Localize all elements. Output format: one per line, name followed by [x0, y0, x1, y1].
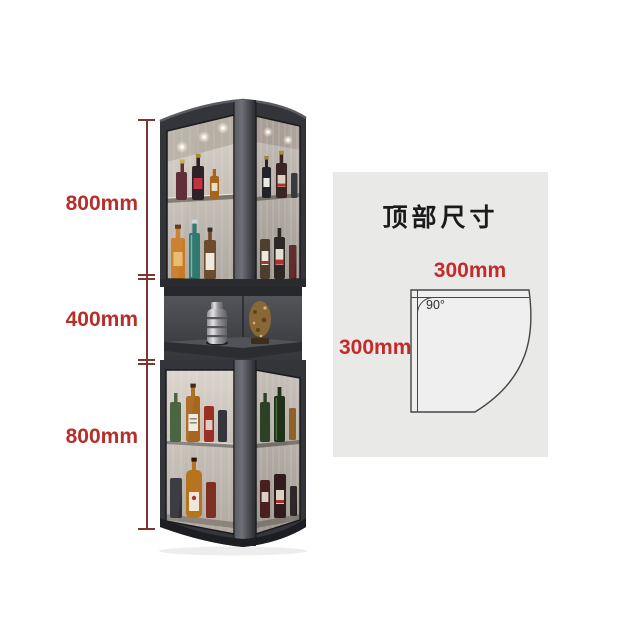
- top-view-width-label: 300mm: [410, 260, 530, 282]
- cabinet-top-section: [160, 100, 306, 287]
- top-view-quarter-circle-diagram: [333, 172, 548, 457]
- height-label-bottom-section: 800mm: [54, 426, 138, 448]
- top-view-panel: 顶部尺寸 300mm 300mm 90°: [333, 172, 548, 457]
- top-left-glass-door: [167, 114, 234, 281]
- corner-wine-cabinet-illustration: [148, 90, 320, 560]
- top-view-depth-label: 300mm: [339, 337, 405, 359]
- height-label-middle-section: 400mm: [54, 309, 138, 331]
- product-dimension-image: 800mm 400mm 800mm: [0, 0, 640, 640]
- top-right-glass-door: [256, 116, 300, 282]
- bottom-left-glass-door: [166, 370, 234, 534]
- cabinet-bottom-section: [160, 360, 306, 547]
- corner-pillar: [234, 360, 256, 546]
- height-label-top-section: 800mm: [54, 193, 138, 215]
- corner-pillar: [234, 100, 256, 287]
- cabinet-middle-open-shelf: [164, 287, 302, 360]
- floor-shadow: [159, 547, 307, 556]
- bottom-right-glass-door: [256, 370, 300, 534]
- top-view-angle-label: 90°: [426, 298, 445, 312]
